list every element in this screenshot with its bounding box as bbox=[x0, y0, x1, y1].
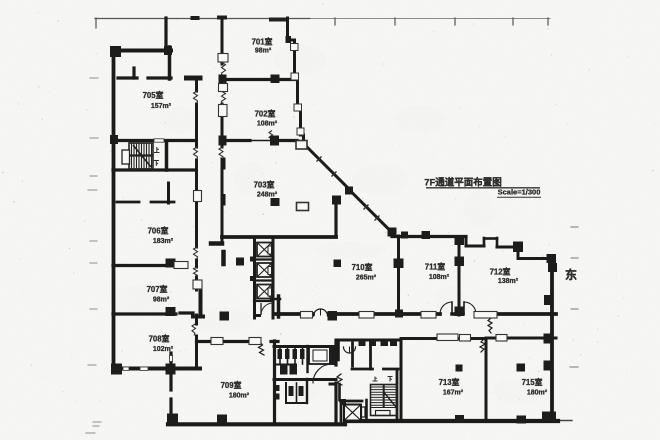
svg-text:180m²: 180m² bbox=[527, 390, 548, 397]
svg-text:138m²: 138m² bbox=[498, 278, 519, 285]
svg-text:167m²: 167m² bbox=[443, 390, 464, 397]
svg-text:713室: 713室 bbox=[439, 377, 460, 387]
svg-text:248m²: 248m² bbox=[257, 192, 278, 199]
svg-text:183m²: 183m² bbox=[153, 238, 174, 245]
svg-text:265m²: 265m² bbox=[356, 275, 377, 282]
svg-text:7F通道平面布置图: 7F通道平面布置图 bbox=[424, 177, 502, 189]
svg-text:707室: 707室 bbox=[147, 284, 168, 294]
svg-text:98m²: 98m² bbox=[255, 48, 272, 55]
svg-text:711室: 711室 bbox=[425, 262, 446, 272]
svg-text:710室: 710室 bbox=[352, 262, 373, 272]
svg-text:Scale=1/300: Scale=1/300 bbox=[498, 188, 541, 197]
svg-text:108m²: 108m² bbox=[257, 121, 278, 128]
svg-text:715室: 715室 bbox=[522, 377, 543, 387]
svg-text:180m²: 180m² bbox=[229, 393, 250, 400]
svg-text:703室: 703室 bbox=[254, 180, 275, 190]
svg-text:708室: 708室 bbox=[149, 334, 170, 344]
svg-text:108m²: 108m² bbox=[429, 274, 450, 281]
svg-text:157m²: 157m² bbox=[151, 103, 172, 110]
svg-text:701室: 701室 bbox=[252, 37, 273, 47]
svg-text:702室: 702室 bbox=[255, 109, 276, 119]
svg-text:709室: 709室 bbox=[221, 380, 242, 390]
svg-text:712室: 712室 bbox=[490, 267, 511, 277]
svg-text:706室: 706室 bbox=[148, 226, 169, 236]
svg-text:98m²: 98m² bbox=[153, 297, 170, 304]
svg-text:705室: 705室 bbox=[143, 90, 164, 100]
svg-text:102m²: 102m² bbox=[153, 346, 174, 353]
svg-text:东: 东 bbox=[565, 267, 577, 282]
